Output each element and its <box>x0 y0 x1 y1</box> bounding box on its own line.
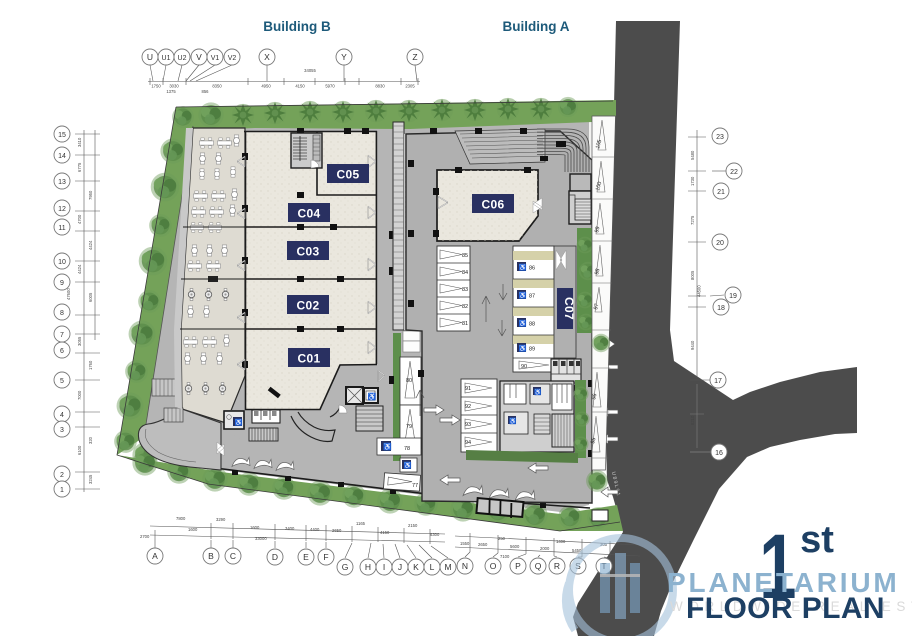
svg-text:19: 19 <box>729 293 737 300</box>
svg-text:1730: 1730 <box>690 176 695 186</box>
svg-text:V2: V2 <box>228 55 237 62</box>
svg-text:4700: 4700 <box>77 214 82 224</box>
svg-text:85: 85 <box>462 253 468 259</box>
svg-text:C04: C04 <box>298 207 321 221</box>
svg-text:1550: 1550 <box>460 541 470 546</box>
svg-text:H: H <box>365 562 371 572</box>
svg-text:1600: 1600 <box>250 525 260 530</box>
svg-text:P: P <box>515 561 521 571</box>
svg-text:4424: 4424 <box>88 240 93 250</box>
svg-text:8: 8 <box>60 310 64 317</box>
svg-text:♿: ♿ <box>519 345 527 353</box>
svg-text:C07: C07 <box>562 297 576 320</box>
svg-text:80: 80 <box>406 378 412 384</box>
svg-text:Q: Q <box>535 561 542 571</box>
svg-text:13: 13 <box>58 179 66 186</box>
svg-text:250: 250 <box>498 536 506 541</box>
svg-text:Building B: Building B <box>263 19 331 34</box>
svg-text:st: st <box>800 519 834 561</box>
svg-text:2305: 2305 <box>405 84 415 89</box>
svg-text:2000: 2000 <box>540 546 550 551</box>
svg-text:1375: 1375 <box>166 89 176 94</box>
svg-text:K: K <box>413 562 419 572</box>
svg-text:C06: C06 <box>482 198 505 212</box>
svg-text:82: 82 <box>462 304 468 310</box>
svg-text:U1: U1 <box>162 55 171 62</box>
svg-text:9: 9 <box>60 280 64 287</box>
svg-text:A: A <box>152 551 158 561</box>
svg-text:2150: 2150 <box>408 523 418 528</box>
svg-text:1600: 1600 <box>188 527 198 532</box>
svg-text:22: 22 <box>730 169 738 176</box>
svg-text:4400: 4400 <box>310 527 320 532</box>
svg-text:81: 81 <box>462 321 468 327</box>
svg-text:U2: U2 <box>178 55 187 62</box>
svg-text:E: E <box>303 552 309 562</box>
svg-text:89: 89 <box>529 347 535 353</box>
svg-text:F: F <box>323 552 328 562</box>
svg-text:21: 21 <box>717 189 725 196</box>
svg-text:4950: 4950 <box>261 84 271 89</box>
svg-text:20: 20 <box>716 240 724 247</box>
svg-text:2650: 2650 <box>332 528 342 533</box>
svg-text:4424: 4424 <box>77 264 82 274</box>
svg-text:856: 856 <box>202 89 210 94</box>
svg-text:C03: C03 <box>297 245 320 259</box>
svg-text:9440: 9440 <box>690 340 695 350</box>
svg-text:4: 4 <box>60 412 64 419</box>
svg-text:V: V <box>196 52 202 62</box>
svg-text:R: R <box>554 561 560 571</box>
svg-text:3290: 3290 <box>216 517 226 522</box>
svg-text:1: 1 <box>60 487 64 494</box>
svg-text:84: 84 <box>462 270 468 276</box>
svg-text:FLOOR PLAN: FLOOR PLAN <box>686 592 885 625</box>
svg-text:G: G <box>342 562 349 572</box>
svg-text:2: 2 <box>60 472 64 479</box>
svg-text:8350: 8350 <box>212 84 222 89</box>
svg-text:3400: 3400 <box>285 526 295 531</box>
svg-text:320: 320 <box>88 436 93 444</box>
svg-text:♿: ♿ <box>368 392 377 401</box>
svg-text:Z: Z <box>412 52 417 62</box>
svg-text:4150: 4150 <box>380 530 390 535</box>
svg-text:2650: 2650 <box>478 542 488 547</box>
svg-text:5: 5 <box>60 378 64 385</box>
svg-text:6100: 6100 <box>77 445 82 455</box>
svg-text:33000: 33000 <box>255 536 267 541</box>
svg-text:7800: 7800 <box>176 516 186 521</box>
svg-text:3055: 3055 <box>77 336 82 346</box>
svg-text:♿: ♿ <box>235 419 243 427</box>
svg-text:7950: 7950 <box>88 190 93 200</box>
svg-text:♿: ♿ <box>404 462 412 470</box>
svg-text:44500: 44500 <box>697 285 702 297</box>
svg-text:11: 11 <box>58 225 65 232</box>
svg-text:8005: 8005 <box>690 270 695 280</box>
svg-text:91: 91 <box>465 386 471 392</box>
svg-text:L: L <box>430 562 435 572</box>
svg-text:87: 87 <box>529 294 535 300</box>
svg-text:♿: ♿ <box>383 442 392 451</box>
svg-text:7: 7 <box>60 332 64 339</box>
svg-text:7275: 7275 <box>690 215 695 225</box>
svg-text:90: 90 <box>521 364 527 370</box>
svg-text:79: 79 <box>406 424 412 430</box>
svg-text:♿: ♿ <box>519 292 527 300</box>
svg-text:♿: ♿ <box>509 417 517 425</box>
svg-text:17: 17 <box>714 378 722 385</box>
svg-text:1400: 1400 <box>556 539 566 544</box>
svg-text:94: 94 <box>465 440 471 446</box>
svg-text:5970: 5970 <box>325 84 335 89</box>
svg-text:D: D <box>272 552 278 562</box>
svg-text:2700: 2700 <box>140 534 150 539</box>
svg-text:I: I <box>383 562 385 572</box>
svg-text:V1: V1 <box>211 55 220 62</box>
svg-text:4150: 4150 <box>295 84 305 89</box>
svg-text:C02: C02 <box>297 299 320 313</box>
svg-text:6: 6 <box>60 348 64 355</box>
svg-text:U: U <box>147 52 153 62</box>
svg-text:23: 23 <box>716 134 724 141</box>
svg-text:15: 15 <box>58 132 66 139</box>
svg-text:86: 86 <box>529 266 535 272</box>
svg-text:47600: 47600 <box>66 288 71 300</box>
svg-text:1760: 1760 <box>88 360 93 370</box>
svg-text:5210: 5210 <box>690 415 695 425</box>
svg-text:3410: 3410 <box>77 137 82 147</box>
svg-text:93: 93 <box>465 422 471 428</box>
svg-text:M: M <box>444 562 451 572</box>
svg-text:C05: C05 <box>337 168 360 182</box>
svg-text:34055: 34055 <box>304 68 316 73</box>
svg-text:12: 12 <box>58 206 66 213</box>
svg-text:92: 92 <box>465 404 471 410</box>
svg-text:3030: 3030 <box>169 84 179 89</box>
svg-text:J: J <box>398 562 402 572</box>
svg-text:Y: Y <box>341 52 347 62</box>
svg-text:18: 18 <box>717 305 725 312</box>
svg-text:6775: 6775 <box>77 162 82 172</box>
svg-text:C01: C01 <box>298 352 321 366</box>
svg-text:1750: 1750 <box>151 84 161 89</box>
svg-text:16: 16 <box>715 450 723 457</box>
svg-text:7100: 7100 <box>500 554 510 559</box>
svg-text:14: 14 <box>58 153 66 160</box>
svg-text:C: C <box>230 551 236 561</box>
svg-text:5480: 5480 <box>690 150 695 160</box>
svg-text:♿: ♿ <box>534 388 542 396</box>
svg-text:O: O <box>490 561 497 571</box>
svg-text:83: 83 <box>462 287 468 293</box>
svg-text:N: N <box>462 561 468 571</box>
svg-text:88: 88 <box>529 322 535 328</box>
svg-text:10: 10 <box>58 259 66 266</box>
svg-text:78: 78 <box>404 446 410 452</box>
svg-text:6005: 6005 <box>88 292 93 302</box>
svg-text:77: 77 <box>412 483 418 489</box>
svg-text:♿: ♿ <box>519 320 527 328</box>
svg-text:5600: 5600 <box>510 544 520 549</box>
svg-text:Building A: Building A <box>503 19 570 34</box>
svg-text:♿: ♿ <box>519 264 527 272</box>
svg-text:X: X <box>264 52 270 62</box>
svg-text:6300: 6300 <box>430 532 440 537</box>
svg-text:1165: 1165 <box>356 521 366 526</box>
svg-text:B: B <box>208 551 214 561</box>
svg-text:7000: 7000 <box>77 390 82 400</box>
svg-text:3245: 3245 <box>88 474 93 484</box>
svg-text:3: 3 <box>60 427 64 434</box>
svg-text:8830: 8830 <box>375 84 385 89</box>
